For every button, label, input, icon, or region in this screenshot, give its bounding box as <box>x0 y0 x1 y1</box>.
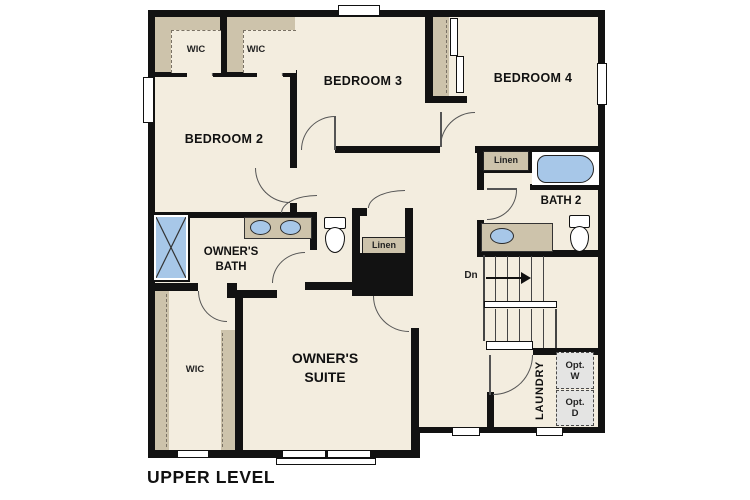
wall-segment-31 <box>235 290 243 458</box>
window-6 <box>276 458 376 465</box>
bedroom2-label: BEDROOM 2 <box>154 132 294 146</box>
owners-wic-shelf-right-edge <box>222 333 223 447</box>
owners-wic-shelf-right <box>221 330 235 450</box>
window-7 <box>452 427 480 436</box>
wic-topright-label: WIC <box>226 44 286 55</box>
door-arc-9 <box>373 296 409 332</box>
floor-plan: Opt. W Opt. D BEDROOM 2 BEDROOM 3 BEDROO… <box>0 0 750 500</box>
owners-wic-label: WIC <box>165 364 225 375</box>
page-title: UPPER LEVEL <box>147 467 407 488</box>
wall-segment-27 <box>305 282 362 290</box>
door-arc-6 <box>368 190 405 208</box>
owners-suite-label-line2: SUITE <box>245 368 405 387</box>
bath2-sink <box>490 228 514 244</box>
stair-arrow-line <box>486 277 522 279</box>
wall-segment-13 <box>425 96 467 103</box>
door-arc-3 <box>301 116 335 150</box>
stair-tread-upper-4 <box>543 256 544 301</box>
optional-dryer-label-1: Opt. <box>566 397 585 408</box>
bedroom3-label: BEDROOM 3 <box>293 74 433 88</box>
stair-rail <box>484 301 557 308</box>
owners-bath-label-line2: BATH <box>171 260 291 275</box>
optional-dryer: Opt. D <box>556 390 594 426</box>
owners-bath-label: OWNER'S BATH <box>171 245 291 275</box>
optional-washer-label-2: W <box>571 371 580 382</box>
understair-rail <box>486 341 533 350</box>
optional-washer-label-1: Opt. <box>566 360 585 371</box>
laundry-label: LAUNDRY <box>530 352 550 430</box>
bedroom4-closet-shelf-edge <box>446 20 447 93</box>
hall-linen-label: Linen <box>354 240 414 250</box>
door-arc-4 <box>440 112 475 147</box>
wall-segment-32 <box>411 328 419 458</box>
wall-segment-28 <box>152 283 198 291</box>
wall-segment-14 <box>335 146 440 153</box>
wall-segment-34 <box>487 392 494 433</box>
wall-segment-4 <box>411 427 605 433</box>
optional-dryer-label-2: D <box>572 408 579 419</box>
door-arc-8 <box>198 291 227 322</box>
wall-segment-12 <box>425 10 433 103</box>
door-leaf-3 <box>487 188 517 190</box>
bedroom4-closet-door-panel-1 <box>450 18 458 56</box>
stair-tread-upper-3 <box>531 256 532 301</box>
stairs-dn-label: Dn <box>459 270 483 281</box>
owners-suite-label: OWNER'S SUITE <box>245 349 405 387</box>
stair-arrow-head <box>521 272 531 284</box>
window-1 <box>143 77 154 123</box>
door-leaf-0 <box>334 116 336 150</box>
wic-topleft-label: WIC <box>166 44 226 55</box>
window-3 <box>177 450 209 458</box>
stair-tread-lower-4 <box>543 309 544 348</box>
owners-sink-right <box>280 220 301 235</box>
window-4 <box>282 450 326 458</box>
bath2-linen-label: Linen <box>476 155 536 165</box>
window-0 <box>338 5 380 16</box>
bathtub <box>537 155 594 183</box>
window-5 <box>327 450 371 458</box>
stair-edge-left <box>483 255 485 341</box>
door-leaf-4 <box>489 355 491 395</box>
door-arc-2 <box>255 168 290 203</box>
wall-segment-25 <box>360 208 367 216</box>
owners-sink-left <box>250 220 271 235</box>
stair-edge-lower-right <box>555 309 557 348</box>
door-leaf-1 <box>440 112 442 147</box>
optional-washer: Opt. W <box>556 352 594 389</box>
door-arc-11 <box>493 355 533 395</box>
chase <box>360 253 413 296</box>
owners-bath-label-line1: OWNER'S <box>171 245 291 260</box>
owners-suite-label-line1: OWNER'S <box>245 349 405 368</box>
bath2-label: BATH 2 <box>511 195 611 207</box>
bedroom4-label: BEDROOM 4 <box>463 71 603 85</box>
